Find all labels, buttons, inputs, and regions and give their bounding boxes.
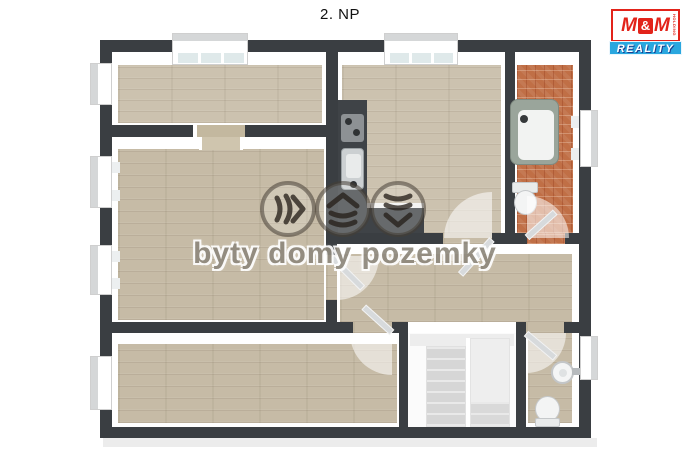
bathtub-faucet <box>520 115 528 123</box>
floor-level-title: 2. NP <box>285 6 395 23</box>
window-frame <box>91 246 98 294</box>
washbasin <box>551 361 574 384</box>
bathtub <box>510 99 559 165</box>
window-frame <box>91 357 98 409</box>
window-sill <box>112 278 120 289</box>
logo-reality-banner: REALITY <box>609 41 682 55</box>
window-pane <box>390 53 409 63</box>
burner <box>345 118 352 125</box>
building-shadow <box>103 438 597 447</box>
window <box>90 156 112 208</box>
logo-m-right: M <box>654 16 670 35</box>
stair-flight-right <box>470 338 510 427</box>
window-pane <box>224 53 244 63</box>
kitchen-sink-basin <box>346 154 361 178</box>
window-frame <box>173 34 247 41</box>
logo-holding-text: HOLDING <box>672 14 677 36</box>
staircase-area <box>408 333 516 427</box>
burner <box>353 129 360 136</box>
doorway-threshold <box>197 125 245 137</box>
wall-segment <box>564 322 579 333</box>
window-frame <box>91 157 98 207</box>
window-frame <box>591 111 597 166</box>
stair-steps <box>471 402 509 426</box>
washbasin-drain <box>559 369 567 377</box>
door-gap-floor <box>526 322 564 333</box>
logo-ampersand: & <box>638 18 653 34</box>
window-pane <box>178 53 198 63</box>
wall-segment <box>112 322 353 333</box>
floorplan-canvas: 2. NP M & M HOLDING REALITY <box>0 0 686 457</box>
wall-segment <box>245 125 327 137</box>
window <box>90 356 112 410</box>
wood-floor <box>118 344 397 423</box>
doorway-ramp <box>199 137 243 150</box>
window <box>90 245 112 295</box>
wall-segment <box>399 322 408 427</box>
wall-exterior-bottom <box>100 427 591 438</box>
stair-flight-left <box>426 346 466 427</box>
window <box>172 33 248 65</box>
watermark-text: byty domy pozemky <box>175 237 515 271</box>
window <box>580 110 598 167</box>
window-sill <box>112 162 120 173</box>
window <box>90 63 112 105</box>
window-frame <box>385 34 457 41</box>
wall-segment <box>112 125 193 137</box>
watermark-icons <box>257 178 429 240</box>
window <box>580 336 598 380</box>
wall-segment <box>326 300 337 322</box>
window-sill <box>112 251 120 262</box>
washbasin-tap <box>572 368 580 375</box>
cooktop <box>341 114 364 142</box>
window-sill <box>112 190 120 201</box>
window-frame <box>91 64 98 104</box>
window-frame <box>591 337 597 379</box>
window-pane <box>201 53 221 63</box>
logo-m-left: M <box>621 16 637 35</box>
window <box>384 33 458 65</box>
window-sill <box>571 116 579 128</box>
logo-mm-box: M & M HOLDING <box>611 9 680 42</box>
window-pane <box>434 53 453 63</box>
toilet-tank <box>535 418 560 427</box>
wall-segment <box>516 322 526 427</box>
window-pane <box>412 53 431 63</box>
window-sill <box>571 148 579 160</box>
wood-floor <box>118 65 322 123</box>
